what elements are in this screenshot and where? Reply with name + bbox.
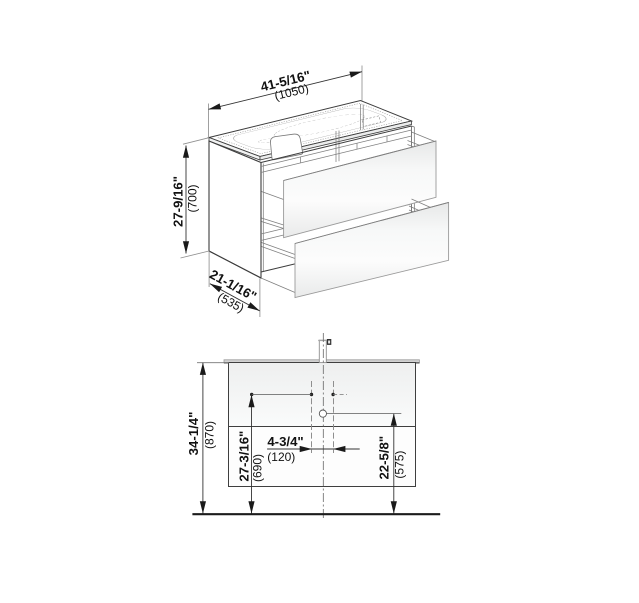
svg-text:27-3/16": 27-3/16" [237,431,252,482]
svg-text:(700): (700) [186,184,200,212]
svg-text:(575): (575) [393,451,407,479]
svg-text:34-1/4": 34-1/4" [186,412,201,456]
svg-text:27-9/16": 27-9/16" [170,176,185,227]
svg-text:(120): (120) [267,450,295,464]
svg-text:4-3/4": 4-3/4" [267,434,303,449]
svg-text:22-5/8": 22-5/8" [377,436,392,480]
svg-text:(690): (690) [251,454,265,482]
svg-text:(870): (870) [202,421,216,449]
